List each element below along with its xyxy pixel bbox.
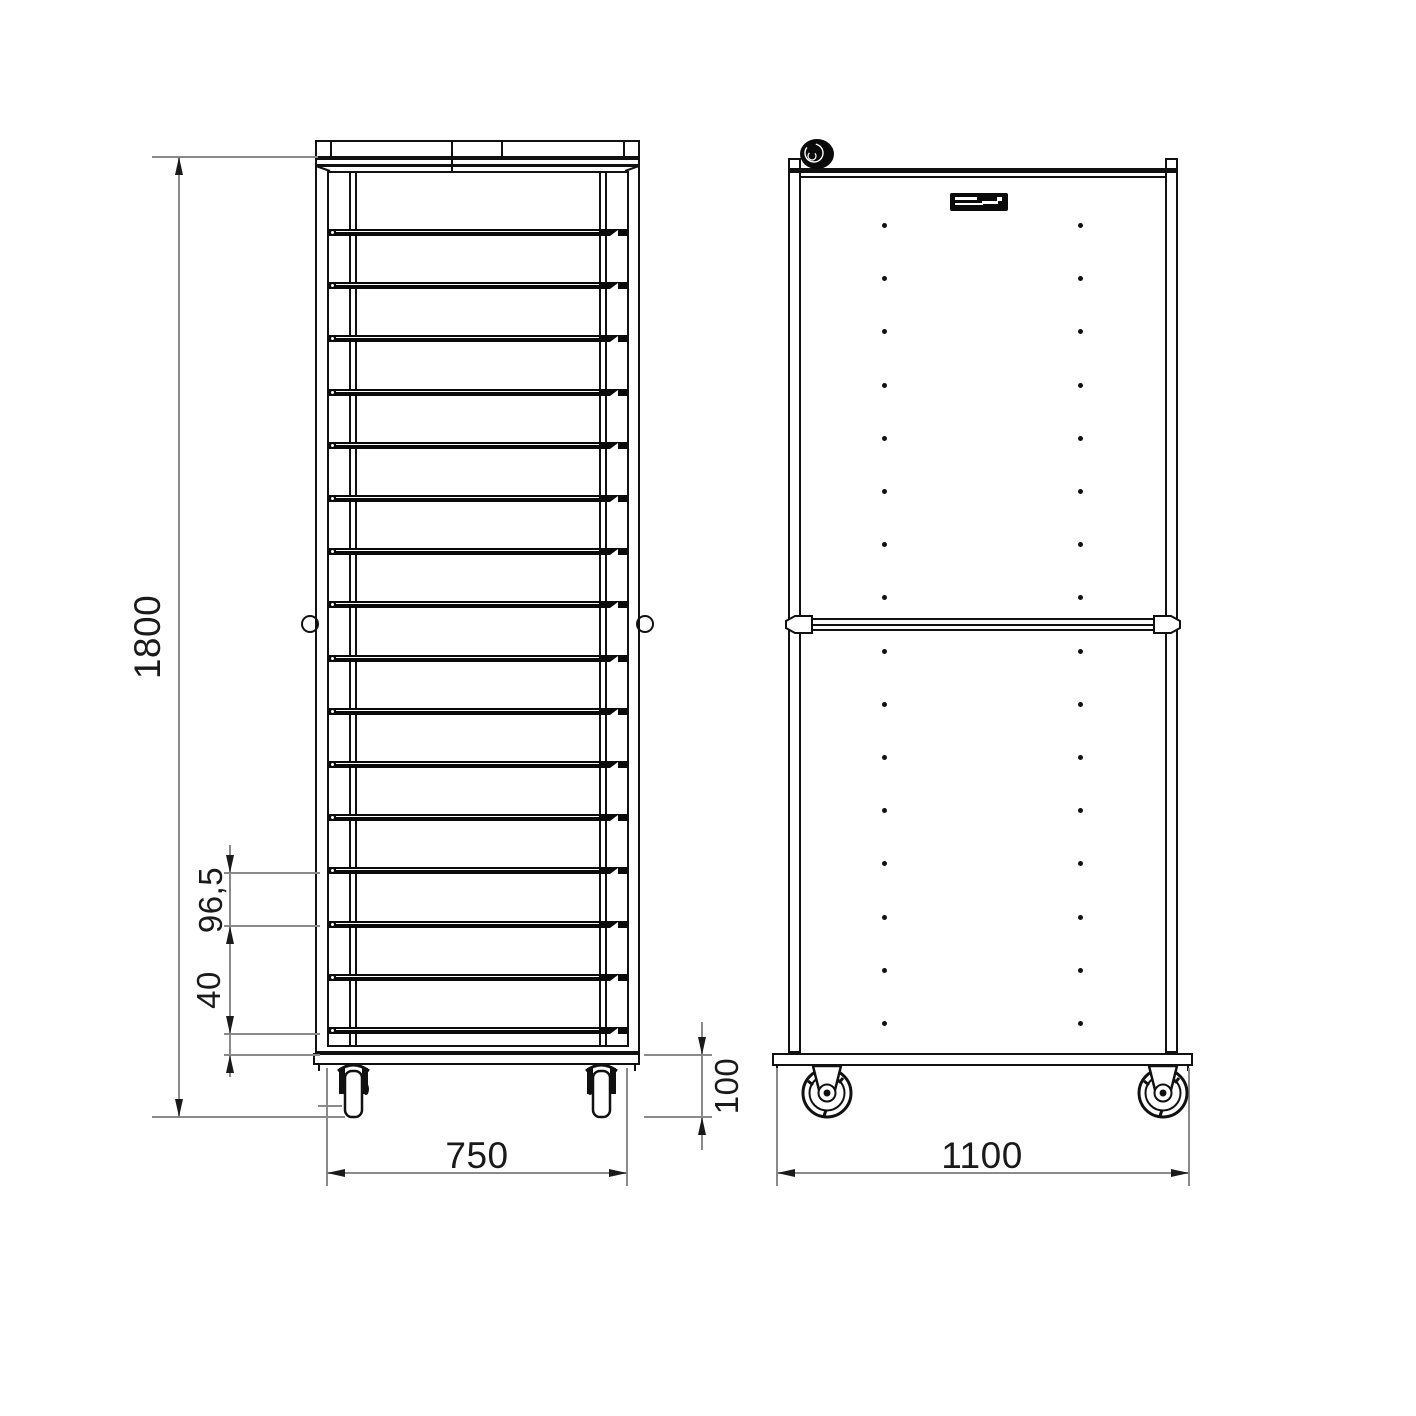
dimension-arrowheads [175, 157, 1189, 1177]
cap-bevel-right [625, 166, 639, 171]
crossbar-cap-right [1154, 616, 1180, 633]
technical-drawing-canvas: 1800 96,5 40 750 100 1100 [0, 0, 1416, 1416]
side-caster-left [803, 1066, 851, 1117]
side-caster-right [1139, 1066, 1187, 1117]
over-layer [0, 0, 1416, 1416]
push-knob-icon [800, 139, 834, 169]
brand-plate-marks [955, 197, 1002, 205]
front-caster-right [586, 1065, 617, 1117]
crossbar-cap-left [786, 616, 812, 633]
cap-bevel-left [316, 166, 330, 171]
front-caster-left [338, 1065, 369, 1117]
